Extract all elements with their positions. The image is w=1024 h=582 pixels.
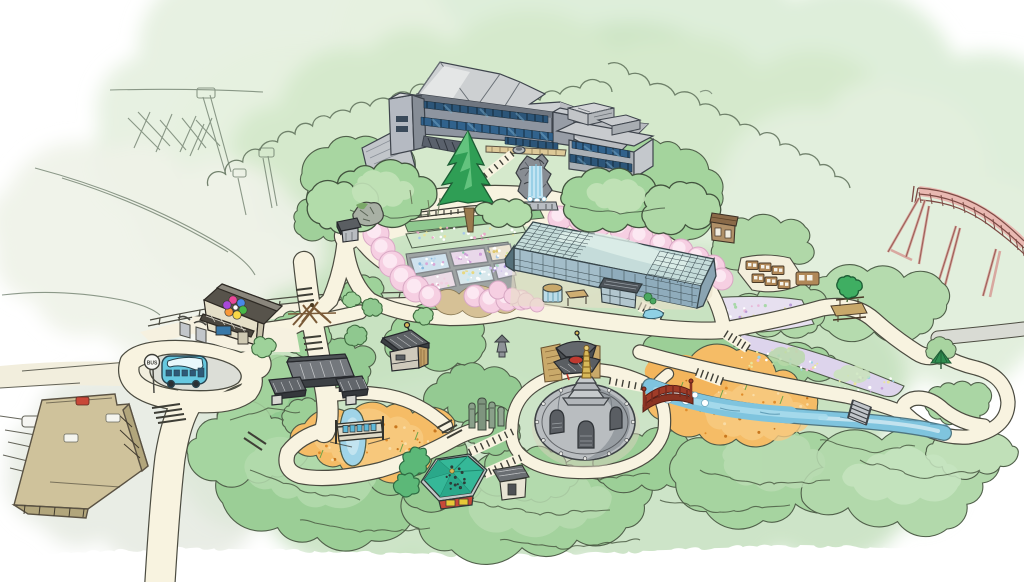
svg-text:BUS: BUS [147, 361, 158, 367]
